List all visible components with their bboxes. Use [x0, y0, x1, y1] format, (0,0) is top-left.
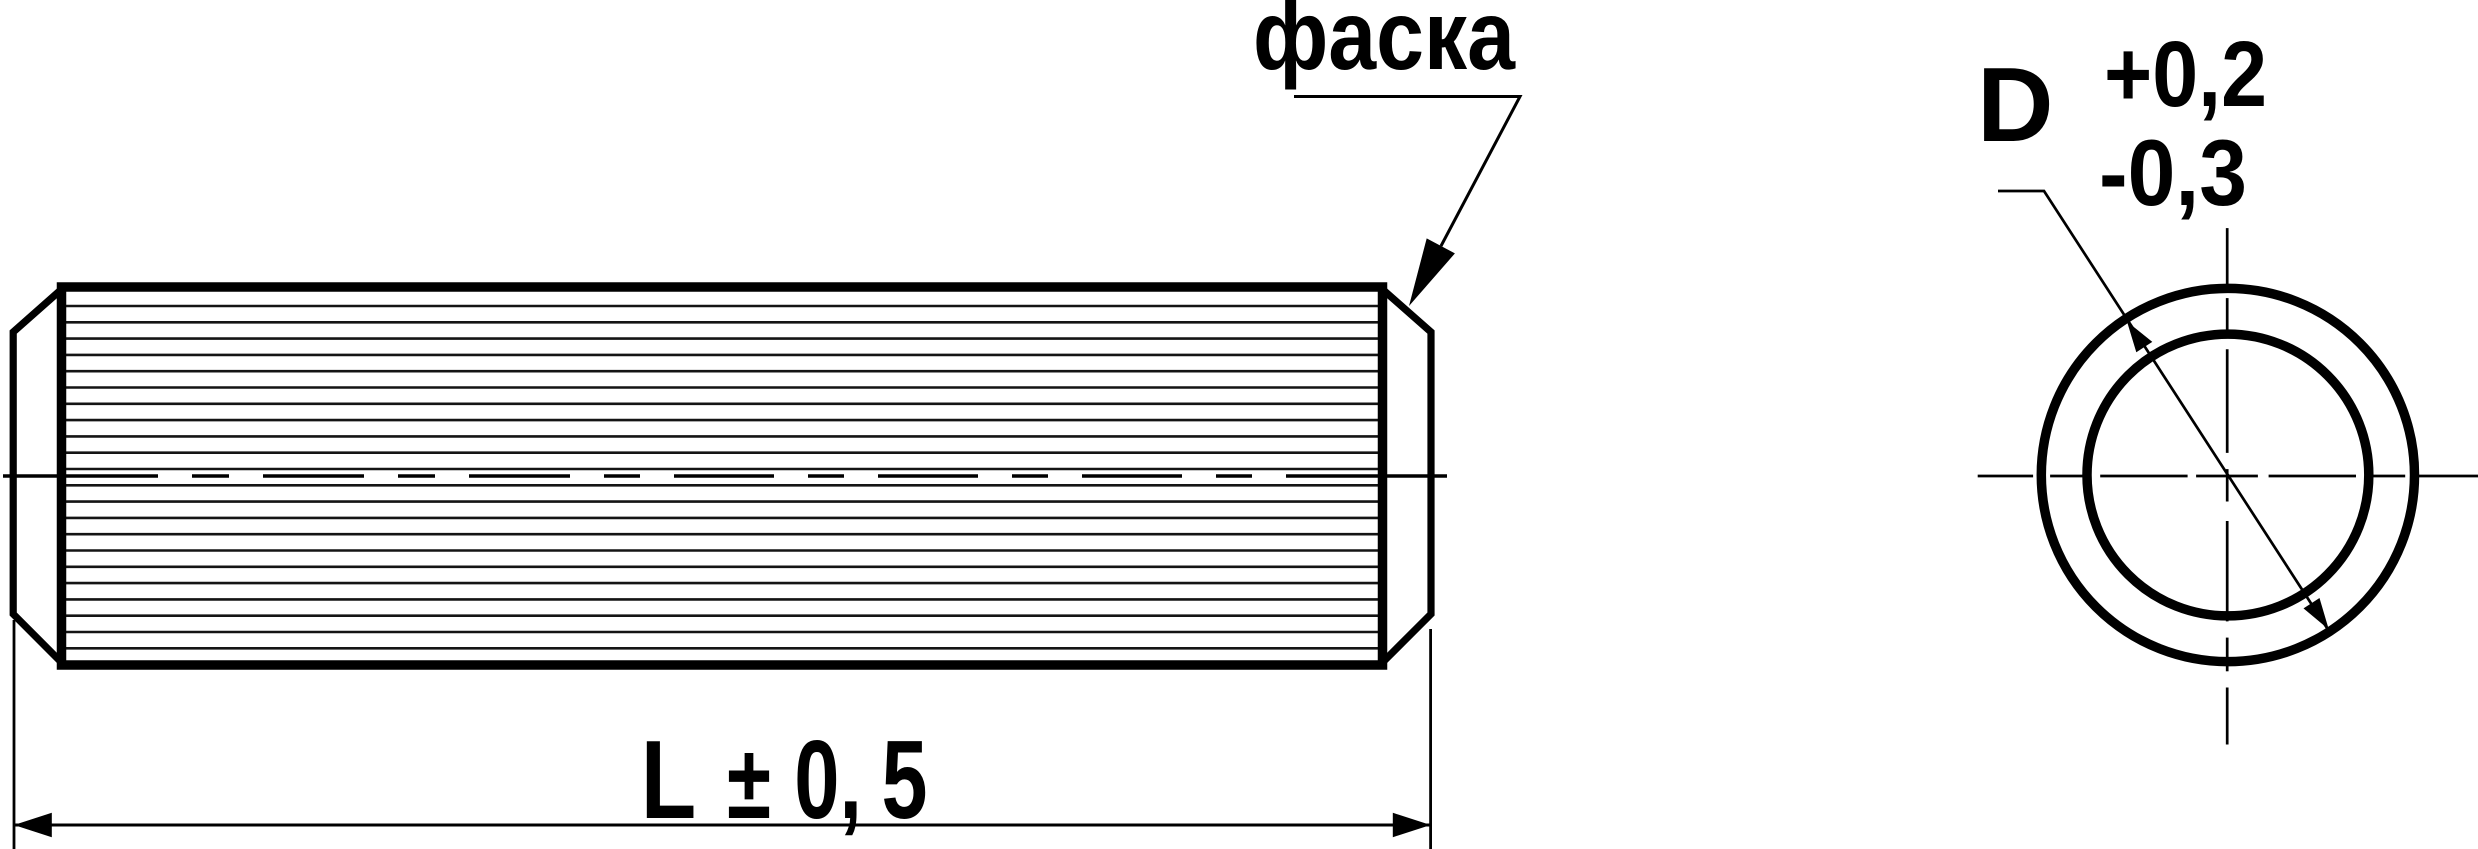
svg-text:D: D	[1977, 46, 2054, 164]
svg-text:±: ±	[727, 724, 771, 841]
svg-text:L: L	[641, 718, 697, 842]
svg-text:+0,2: +0,2	[2104, 22, 2267, 126]
svg-text:-0,3: -0,3	[2099, 120, 2247, 225]
svg-text:фаска: фаска	[1253, 0, 1516, 90]
svg-text:5: 5	[882, 718, 928, 842]
svg-text:0,: 0,	[794, 718, 862, 842]
